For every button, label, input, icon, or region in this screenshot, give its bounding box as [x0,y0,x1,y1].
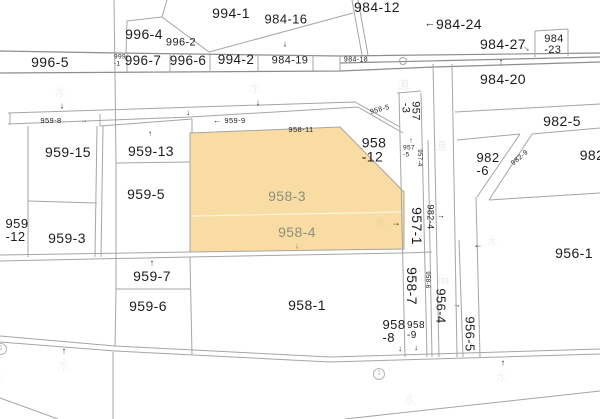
arrow-up: ↑ [62,347,67,356]
parcel-label-984-20: 984-20 [480,72,526,86]
parcel-label-984-19: 984-19 [272,55,309,66]
parcel-label-996-6: 996-6 [170,54,207,68]
water-kanji-label [56,358,72,374]
water-kanji-label [495,371,510,386]
parcel-label-959-12: 959-12 [6,217,29,244]
parcel-label-984-27: 984-27 [480,37,526,51]
arrow-right: → [437,212,445,220]
parcel-label-996-2: 996-2 [166,37,196,48]
parcel-label-984-18: 984-18 [344,56,368,63]
parcel-label-982-4: 982-4 [425,204,434,229]
water-kanji-label [247,81,263,97]
arrow-down: ↓ [398,345,402,353]
parcel-label-984-23: 984-23 [544,34,564,56]
arrow-right: → [81,118,88,125]
parcel-label-982: 982 [580,148,600,162]
parcel-label-982-5: 982-5 [543,114,581,128]
arrow-left: ← [425,19,436,30]
parcel-label-996-7: 996-7 [125,54,162,68]
parcel-label-959-5: 959-5 [127,187,165,201]
arrow-right: → [392,219,401,228]
circled-1-marker: 1 [373,368,385,380]
parcel-label--3: -3 [399,103,410,114]
parcel-label-984-16: 984-16 [265,12,308,25]
parcel-label-994-1: 994-1 [212,6,250,20]
parcel-label-958-3: 958-3 [268,189,306,203]
water-kanji-label [374,216,388,230]
arrow-left: ← [213,117,221,125]
parcel-label-958-1: 958-1 [288,298,326,312]
parcel-label-959-15: 959-15 [45,145,91,159]
parcel-label-958-6: 958-6 [424,271,430,288]
road-kanji-label [436,273,451,288]
arrow-up: ↑ [501,359,506,368]
parcel-label-956-5: 956-5 [463,316,476,351]
parcel-label-959-7: 959-7 [133,269,171,283]
arrow-left: ← [474,241,483,250]
arrow-down: ↓ [186,109,190,117]
label-line: -8 [383,331,406,344]
parcel-label-959-13: 959-13 [128,144,174,158]
arrow-up: ↑ [150,259,155,268]
label-line: -5 [403,152,415,159]
parcel-label-958-12: 958-12 [362,136,387,165]
water-kanji-label [402,392,418,408]
label-line: -23 [544,45,564,56]
circled-1-marker: 1 [0,343,7,355]
parcel-label-958-4: 958-4 [278,225,316,239]
road-kanji-label [433,138,449,154]
parcel-label-958-9: 958-9 [407,321,425,341]
arrow-down: ↓ [256,99,261,108]
label-line: -12 [362,150,387,164]
water-kanji-label [0,372,5,386]
label-line: -12 [6,230,29,243]
parcel-label-959-6: 959-6 [129,299,167,313]
parcel-label-957-1: 957-1 [410,207,424,245]
label-line: 982 [477,151,500,164]
label-line: 958 [383,318,406,331]
label-line: -9 [407,331,425,341]
parcel-label-959-9: 959-9 [224,117,245,125]
parcel-label-984-12: 984-12 [354,0,400,14]
label-line: -6 [477,164,500,177]
parcel-label-984-24: 984-24 [436,17,482,31]
water-kanji-label [486,235,500,249]
parcel-label-982-6: 982-6 [477,151,500,178]
arrow-down: ↓ [414,344,418,352]
cadastral-map: 994-1996-4996-2984-16984-12984-24984-279… [0,0,600,419]
parcel-label-958-8: 958-8 [383,318,406,345]
arrow-up: ↑ [148,130,152,138]
parcel-label-996-4: 996-4 [125,27,163,41]
arrow-down: ↓ [283,40,288,49]
road-kanji-label [396,77,412,93]
labels-layer: 994-1996-4996-2984-16984-12984-24984-279… [0,0,600,419]
parcel-label-958-7: 958-7 [405,267,419,305]
parcel-label-982-9: 982-9 [510,149,530,167]
arrow-down: ↓ [295,242,300,251]
arrow-up: ↑ [409,138,413,145]
label-line: 958 [362,136,387,150]
parcel-label-958-11: 958-11 [288,126,313,134]
arrow-down: ↓ [60,102,65,111]
water-kanji-label [53,85,69,101]
parcel-label-959-8: 959-8 [40,117,61,125]
parcel-label-956-4: 956-4 [434,288,447,323]
parcel-label-956-1: 956-1 [555,246,593,260]
parcel-label-957-4: 957-4 [416,149,422,166]
parcel-label-959-3: 959-3 [48,231,86,245]
parcel-label-958-5: 958-5 [369,104,390,116]
label-line: 959 [6,217,29,230]
arrow-up: ↑ [499,58,504,67]
parcel-label-994-2: 994-2 [218,53,255,67]
parcel-label-957-5: 957-5 [403,145,415,158]
arrow-right: → [452,300,462,310]
parcel-label-996-5: 996-5 [31,55,69,69]
